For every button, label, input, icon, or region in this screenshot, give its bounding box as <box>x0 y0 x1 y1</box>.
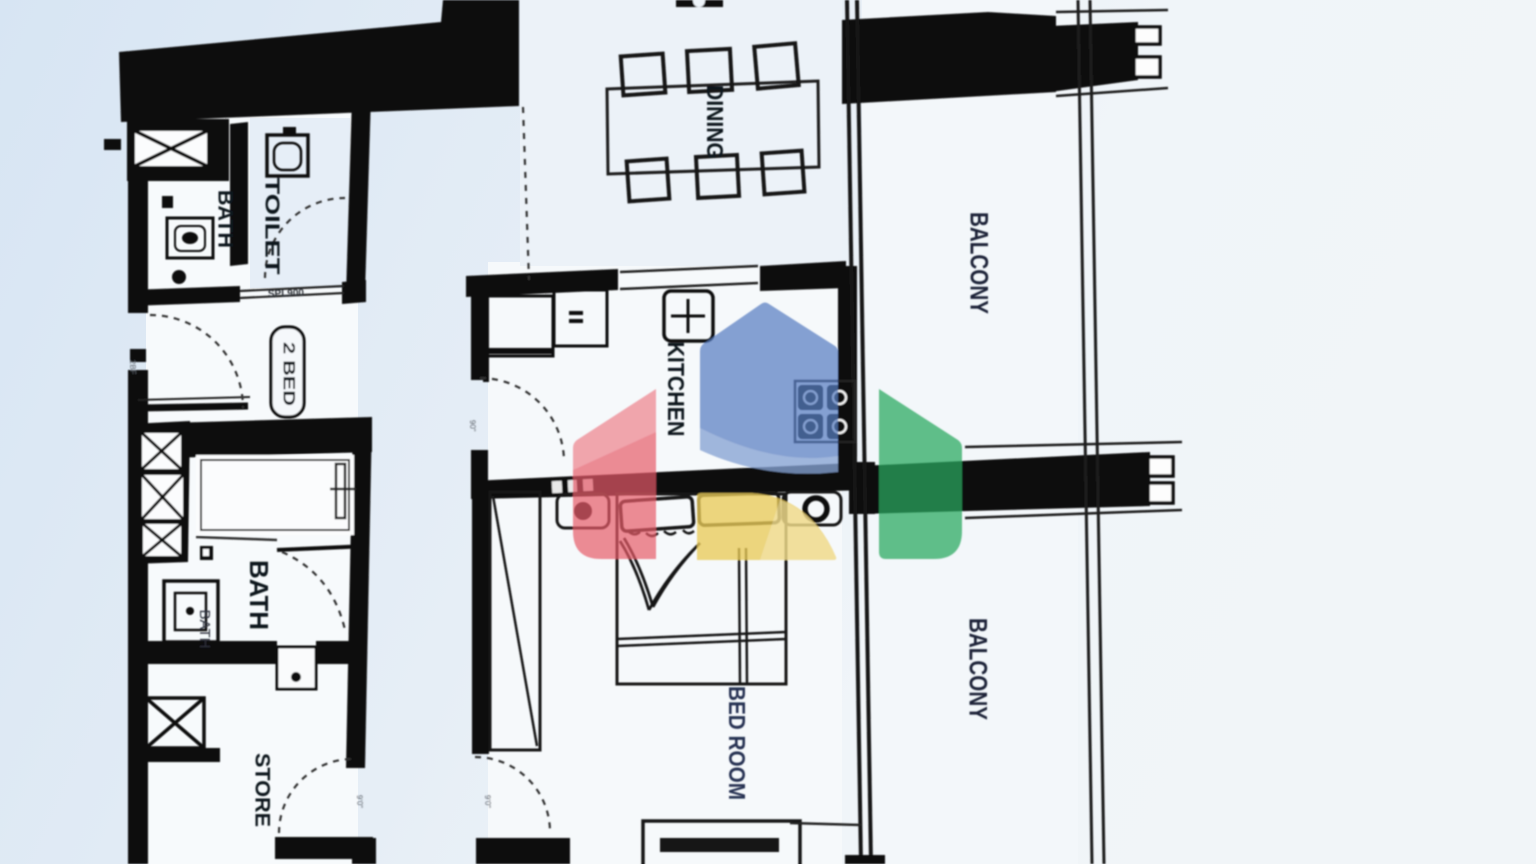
svg-text:BALCONY: BALCONY <box>963 618 991 720</box>
svg-text:KITCHEN: KITCHEN <box>663 342 689 437</box>
svg-text:2 BED: 2 BED <box>280 342 299 406</box>
svg-text:90": 90" <box>468 420 477 432</box>
svg-text:BATH: BATH <box>196 610 213 649</box>
svg-text:9'0": 9'0" <box>483 795 492 809</box>
svg-text:BALCONY: BALCONY <box>964 212 992 314</box>
svg-text:STORE: STORE <box>250 753 273 827</box>
svg-text:BATH: BATH <box>244 560 274 630</box>
svg-text:BED ROOM: BED ROOM <box>724 686 750 800</box>
svg-text:TOILET: TOILET <box>261 178 283 275</box>
svg-text:2BF: 2BF <box>128 360 138 375</box>
svg-text:DINING: DINING <box>702 85 728 159</box>
svg-text:9'0": 9'0" <box>355 795 364 809</box>
svg-text:SPL900: SPL900 <box>268 288 305 300</box>
svg-text:BATH: BATH <box>213 190 236 248</box>
